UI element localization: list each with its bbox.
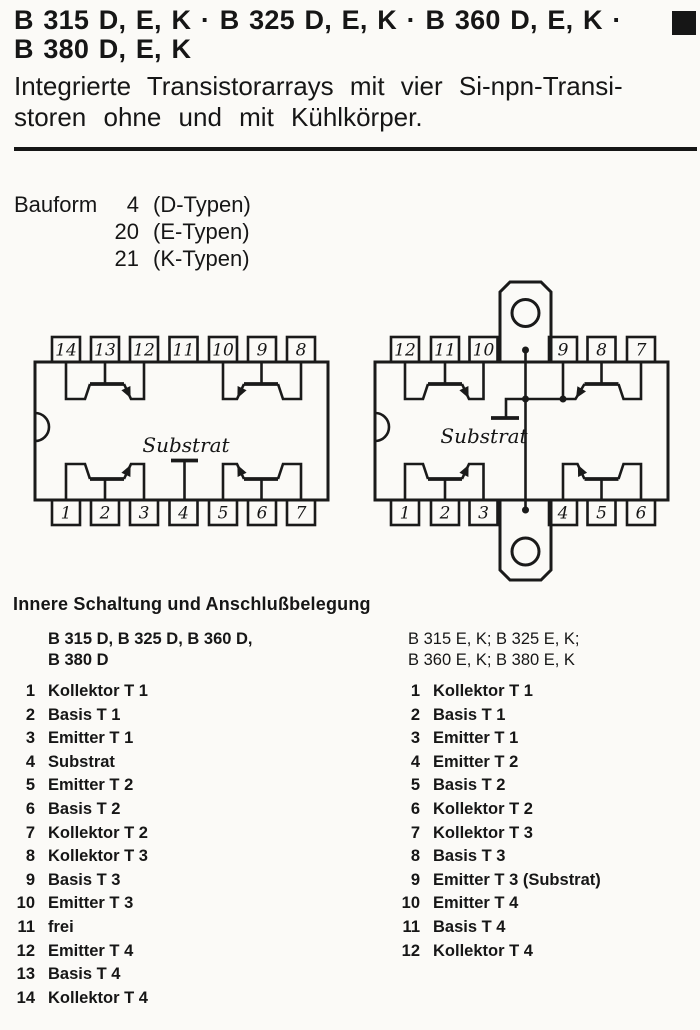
- pin-label: Kollektor T 2: [48, 822, 148, 846]
- pin-number: 7: [14, 822, 35, 846]
- pin-row: 11Basis T 4: [391, 916, 601, 940]
- pin-number-label: 1: [61, 504, 72, 524]
- pin-label: Kollektor T 4: [433, 940, 533, 964]
- pin-number-label: 6: [636, 504, 647, 524]
- pin-number-label: 4: [177, 504, 189, 524]
- pin-number-label: 4: [557, 504, 569, 524]
- pin-label: Substrat: [48, 751, 115, 775]
- pin-number-label: 10: [473, 341, 495, 361]
- index-notch: [375, 413, 389, 441]
- transistor-t2: [223, 464, 301, 500]
- substrate-terminal: [171, 461, 198, 501]
- pin-row: 12Kollektor T 4: [391, 940, 601, 964]
- pin-number-label: 5: [596, 504, 607, 524]
- pin-number: 1: [391, 680, 420, 704]
- pin-row: 4Emitter T 2: [391, 751, 601, 775]
- pinout-left-header-line-1: B 315 D, B 325 D, B 360 D,: [48, 629, 253, 650]
- pin-number: 9: [14, 869, 35, 893]
- pin-row: 7Kollektor T 2: [14, 822, 148, 846]
- pin-label: Emitter T 3: [48, 892, 133, 916]
- pin-label: Kollektor T 3: [433, 822, 533, 846]
- pin-number: 5: [391, 774, 420, 798]
- pin-row: 5Emitter T 2: [14, 774, 148, 798]
- dip14-top-pins: 141312111098: [52, 337, 315, 362]
- pin-number-label: 14: [55, 341, 77, 361]
- pin-row: 11frei: [14, 916, 148, 940]
- tab12-diagram: 121110987 123456: [375, 282, 668, 580]
- transistor-t1: [66, 464, 144, 500]
- substrate-terminal: [506, 399, 526, 418]
- junction-dot: [522, 396, 529, 403]
- pin-row: 4Substrat: [14, 751, 148, 775]
- pin-row: 14Kollektor T 4: [14, 987, 148, 1011]
- pin-number-label: 8: [296, 341, 307, 361]
- pin-row: 2Basis T 1: [14, 704, 148, 728]
- pin-number-label: 1: [400, 504, 411, 524]
- pin-row: 8Kollektor T 3: [14, 845, 148, 869]
- transistor-t1: [405, 464, 484, 500]
- pin-label: Emitter T 1: [433, 727, 518, 751]
- pin-number-label: 7: [636, 341, 647, 361]
- transistor-t4: [66, 362, 144, 399]
- pin-label: Kollektor T 4: [48, 987, 148, 1011]
- pin-number-label: 3: [139, 504, 150, 524]
- junction-dot: [522, 347, 529, 354]
- pin-label: Emitter T 4: [433, 892, 518, 916]
- pin-number: 2: [391, 704, 420, 728]
- pin-row: 9Emitter T 3 (Substrat): [391, 869, 601, 893]
- pin-label: Basis T 2: [48, 798, 120, 822]
- pin-label: Basis T 1: [433, 704, 505, 728]
- pin-label: Kollektor T 1: [433, 680, 533, 704]
- pinout-right-header-line-2: B 360 E, K; B 380 E, K: [408, 650, 580, 671]
- transistor-t3: [563, 362, 641, 399]
- pin-number: 11: [391, 916, 420, 940]
- pin-label: Emitter T 2: [48, 774, 133, 798]
- junction-dot: [522, 507, 529, 514]
- pin-label: frei: [48, 916, 74, 940]
- pin-number-label: 2: [99, 504, 111, 524]
- pin-number-label: 9: [257, 341, 268, 361]
- pin-number: 7: [391, 822, 420, 846]
- transistor-t2: [563, 464, 641, 500]
- datasheet-page: B 315 D, E, K · B 325 D, E, K · B 360 D,…: [0, 0, 700, 1030]
- pin-label: Basis T 1: [48, 704, 120, 728]
- dip14-diagram: 141312111098 1234567: [35, 337, 328, 525]
- pin-row: 2Basis T 1: [391, 704, 601, 728]
- tab12-bottom-pins: 123456: [391, 500, 655, 525]
- transistor-t3: [223, 362, 301, 399]
- pin-number-label: 13: [94, 341, 116, 361]
- pinout-left-header-line-2: B 380 D: [48, 650, 253, 671]
- pin-number: 11: [14, 916, 35, 940]
- pin-number-label: 11: [434, 341, 456, 361]
- pin-row: 7Kollektor T 3: [391, 822, 601, 846]
- pin-label: Kollektor T 1: [48, 680, 148, 704]
- pin-label: Emitter T 4: [48, 940, 133, 964]
- pin-number-label: 9: [558, 341, 569, 361]
- pin-number: 12: [391, 940, 420, 964]
- pin-number-label: 3: [478, 504, 489, 524]
- substrate-label: Substrat: [142, 433, 230, 457]
- pinout-left-header: B 315 D, B 325 D, B 360 D, B 380 D: [48, 629, 253, 670]
- pin-number-label: 7: [296, 504, 307, 524]
- pin-label: Basis T 3: [433, 845, 505, 869]
- pin-row: 10Emitter T 4: [391, 892, 601, 916]
- pin-number: 6: [14, 798, 35, 822]
- pin-row: 3Emitter T 1: [391, 727, 601, 751]
- pinout-right-header-line-1: B 315 E, K; B 325 E, K;: [408, 629, 580, 650]
- pin-number: 13: [14, 963, 35, 987]
- pin-number: 1: [14, 680, 35, 704]
- pin-number: 8: [391, 845, 420, 869]
- pin-number: 10: [14, 892, 35, 916]
- pin-number: 4: [14, 751, 35, 775]
- pin-number-label: 10: [212, 341, 234, 361]
- pin-label: Kollektor T 3: [48, 845, 148, 869]
- pin-label: Basis T 3: [48, 869, 120, 893]
- pin-list-left: 1Kollektor T 12Basis T 13Emitter T 14Sub…: [14, 680, 148, 1010]
- pin-number-label: 12: [394, 341, 416, 361]
- pin-number-label: 8: [596, 341, 607, 361]
- pin-label: Emitter T 2: [433, 751, 518, 775]
- pin-number-label: 2: [439, 504, 451, 524]
- pinout-right-header: B 315 E, K; B 325 E, K; B 360 E, K; B 38…: [408, 629, 580, 670]
- pin-number-label: 12: [133, 341, 155, 361]
- pin-label: Basis T 2: [433, 774, 505, 798]
- pin-number: 3: [14, 727, 35, 751]
- pin-number: 2: [14, 704, 35, 728]
- pin-number: 12: [14, 940, 35, 964]
- pin-number: 3: [391, 727, 420, 751]
- pin-row: 1Kollektor T 1: [391, 680, 601, 704]
- pin-number-label: 6: [257, 504, 268, 524]
- pin-list-right: 1Kollektor T 12Basis T 13Emitter T 14Emi…: [391, 680, 601, 963]
- pin-label: Basis T 4: [433, 916, 505, 940]
- pin-row: 1Kollektor T 1: [14, 680, 148, 704]
- pin-row: 10Emitter T 3: [14, 892, 148, 916]
- pin-row: 8Basis T 3: [391, 845, 601, 869]
- index-notch: [35, 413, 49, 441]
- top-tab-hole: [512, 300, 539, 327]
- pin-number: 9: [391, 869, 420, 893]
- pin-label: Emitter T 1: [48, 727, 133, 751]
- pinout-heading: Innere Schaltung und Anschlußbelegung: [13, 594, 371, 615]
- transistor-t4: [405, 362, 484, 399]
- pin-number: 14: [14, 987, 35, 1011]
- pin-number: 6: [391, 798, 420, 822]
- pin-row: 5Basis T 2: [391, 774, 601, 798]
- pin-row: 6Basis T 2: [14, 798, 148, 822]
- pin-row: 12Emitter T 4: [14, 940, 148, 964]
- pin-number: 10: [391, 892, 420, 916]
- pin-number: 8: [14, 845, 35, 869]
- dip14-body: [35, 362, 328, 500]
- pin-row: 9Basis T 3: [14, 869, 148, 893]
- substrate-label: Substrat: [440, 424, 528, 448]
- pin-row: 13Basis T 4: [14, 963, 148, 987]
- pin-label: Basis T 4: [48, 963, 120, 987]
- pin-number-label: 11: [173, 341, 195, 361]
- dip14-bottom-pins: 1234567: [52, 500, 315, 525]
- pin-row: 3Emitter T 1: [14, 727, 148, 751]
- pin-number: 4: [391, 751, 420, 775]
- pin-label: Kollektor T 2: [433, 798, 533, 822]
- pin-label: Emitter T 3 (Substrat): [433, 869, 601, 893]
- pin-number: 5: [14, 774, 35, 798]
- pin-number-label: 5: [218, 504, 229, 524]
- bottom-tab-hole: [512, 538, 539, 565]
- pin-row: 6Kollektor T 2: [391, 798, 601, 822]
